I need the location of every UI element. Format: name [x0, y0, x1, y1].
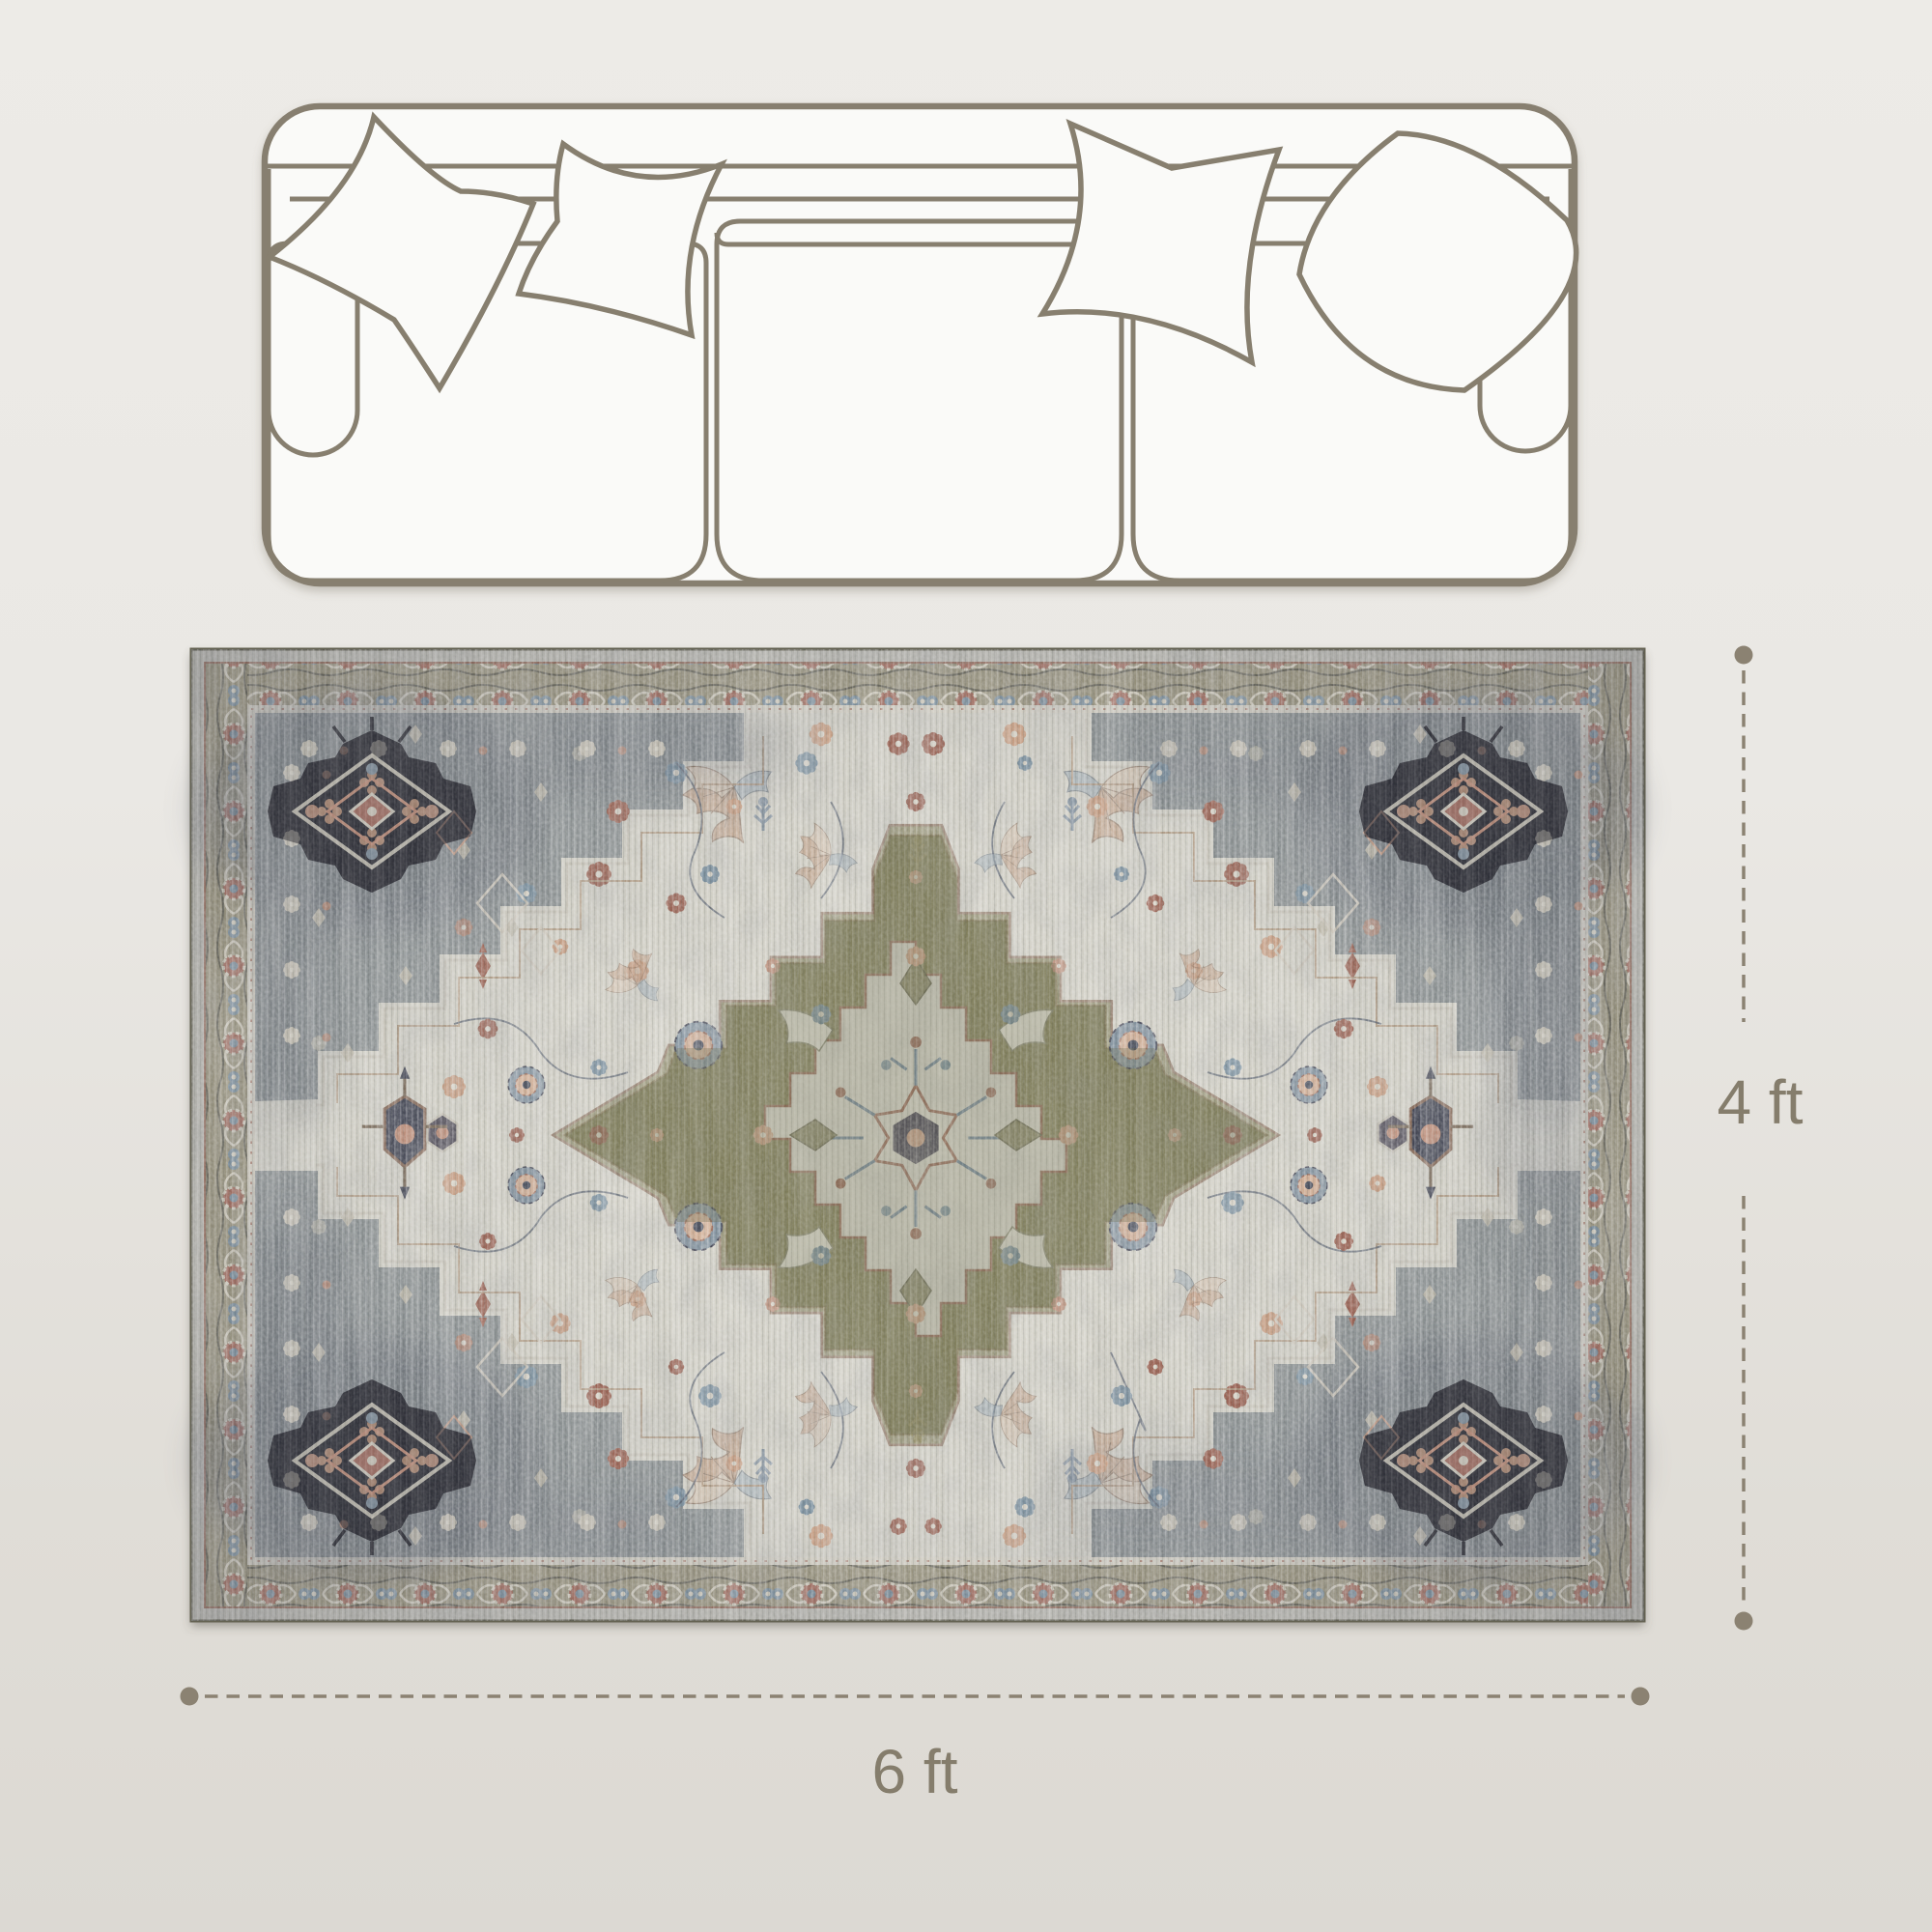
svg-text:4 ft: 4 ft: [1718, 1067, 1804, 1137]
svg-text:6 ft: 6 ft: [872, 1737, 958, 1806]
